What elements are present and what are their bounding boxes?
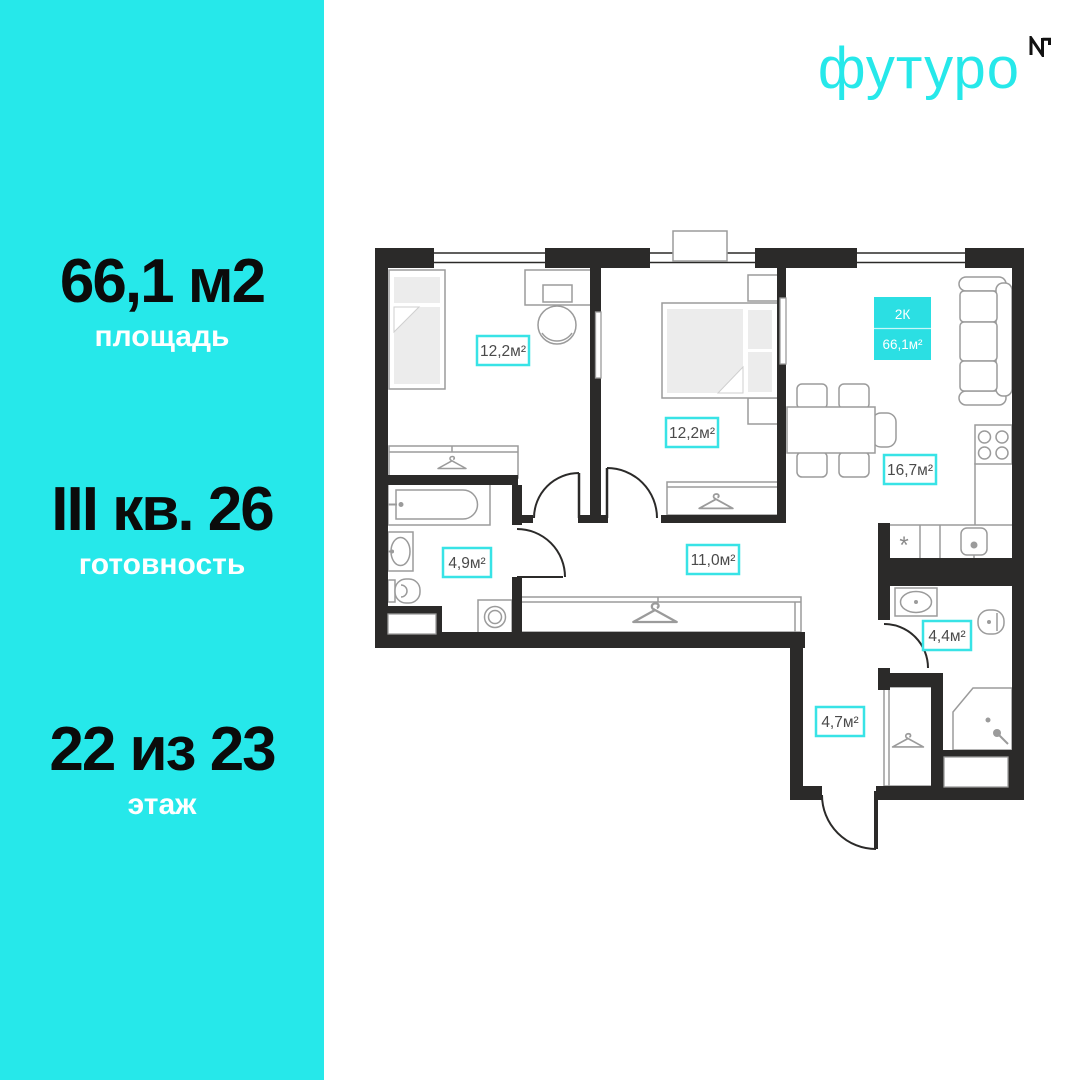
dining-set — [787, 384, 896, 477]
stat-floor-label: этаж — [0, 788, 324, 822]
brand-logo: футуро — [700, 36, 1020, 102]
bathroom2-sink — [895, 588, 937, 616]
room-label-bedroom-2: 12,2м² — [666, 418, 718, 447]
stat-readiness-label: готовность — [0, 548, 324, 582]
stat-readiness: III кв. 26 готовность — [0, 474, 324, 582]
living-sofa — [959, 277, 1012, 405]
corridor-wardrobe — [884, 687, 932, 786]
stat-floor-value: 22 из 23 — [0, 714, 324, 786]
kitchen-stove — [975, 425, 1012, 464]
appliance-asterisk-icon: * — [899, 532, 908, 559]
badge-total-area: 66,1м² — [882, 337, 923, 352]
bathroom1-toilet — [388, 579, 420, 603]
bathroom1-sink — [388, 532, 413, 571]
page: 66,1 м2 площадь III кв. 26 готовность 22… — [0, 0, 1080, 1080]
bedroom2-door — [607, 468, 657, 518]
stat-area: 66,1 м2 площадь — [0, 246, 324, 354]
bedroom1-desk-chair — [525, 270, 592, 344]
bedroom1-wardrobe — [389, 446, 518, 478]
bathroom2-door — [884, 624, 928, 668]
room-label-second-bathroom: 4,4м² — [923, 621, 971, 650]
bathroom1-bathtub — [388, 484, 490, 525]
svg-text:4,7м²: 4,7м² — [821, 714, 858, 731]
room-label-kitchen-living: 16,7м² — [884, 455, 936, 484]
room-label-hallway: 11,0м² — [687, 545, 739, 574]
entry-door — [822, 791, 876, 849]
washing-machine-icon — [478, 600, 512, 634]
svg-text:4,9м²: 4,9м² — [448, 555, 485, 572]
svg-text:16,7м²: 16,7м² — [887, 462, 933, 479]
hallway-wardrobe — [518, 597, 801, 632]
stat-readiness-value: III кв. 26 — [0, 474, 324, 546]
bathroom2-toilet — [978, 610, 1004, 634]
bedroom1-door — [534, 473, 579, 518]
stat-area-label: площадь — [0, 320, 324, 354]
floor-plan: 12,2м² 12,2м² 16,7м² 11,0м² 4,9м² 4,4м² — [372, 228, 1028, 864]
shower — [953, 688, 1012, 750]
stat-area-value: 66,1 м2 — [0, 246, 324, 318]
doors — [517, 468, 928, 849]
svg-text:12,2м²: 12,2м² — [669, 425, 715, 442]
room-label-entry-corridor: 4,7м² — [816, 707, 864, 736]
svg-text:4,4м²: 4,4м² — [928, 628, 965, 645]
apartment-badge: 2К 66,1м² — [874, 297, 931, 360]
bathroom1-door — [517, 529, 565, 577]
nt-logo-icon — [1029, 36, 1051, 57]
bedroom2-wardrobe — [667, 482, 782, 515]
stat-floor: 22 из 23 этаж — [0, 714, 324, 822]
badge-rooms-type: 2К — [895, 307, 911, 322]
svg-text:11,0м²: 11,0м² — [691, 552, 736, 569]
info-sidebar: 66,1 м2 площадь III кв. 26 готовность 22… — [0, 0, 324, 1080]
svg-text:12,2м²: 12,2м² — [480, 343, 526, 360]
room-label-bathroom: 4,9м² — [443, 548, 491, 577]
room-label-bedroom-1: 12,2м² — [477, 336, 529, 365]
vent-box — [673, 231, 727, 261]
bedroom1-bed — [389, 270, 445, 389]
bedroom2-bed — [662, 275, 778, 424]
